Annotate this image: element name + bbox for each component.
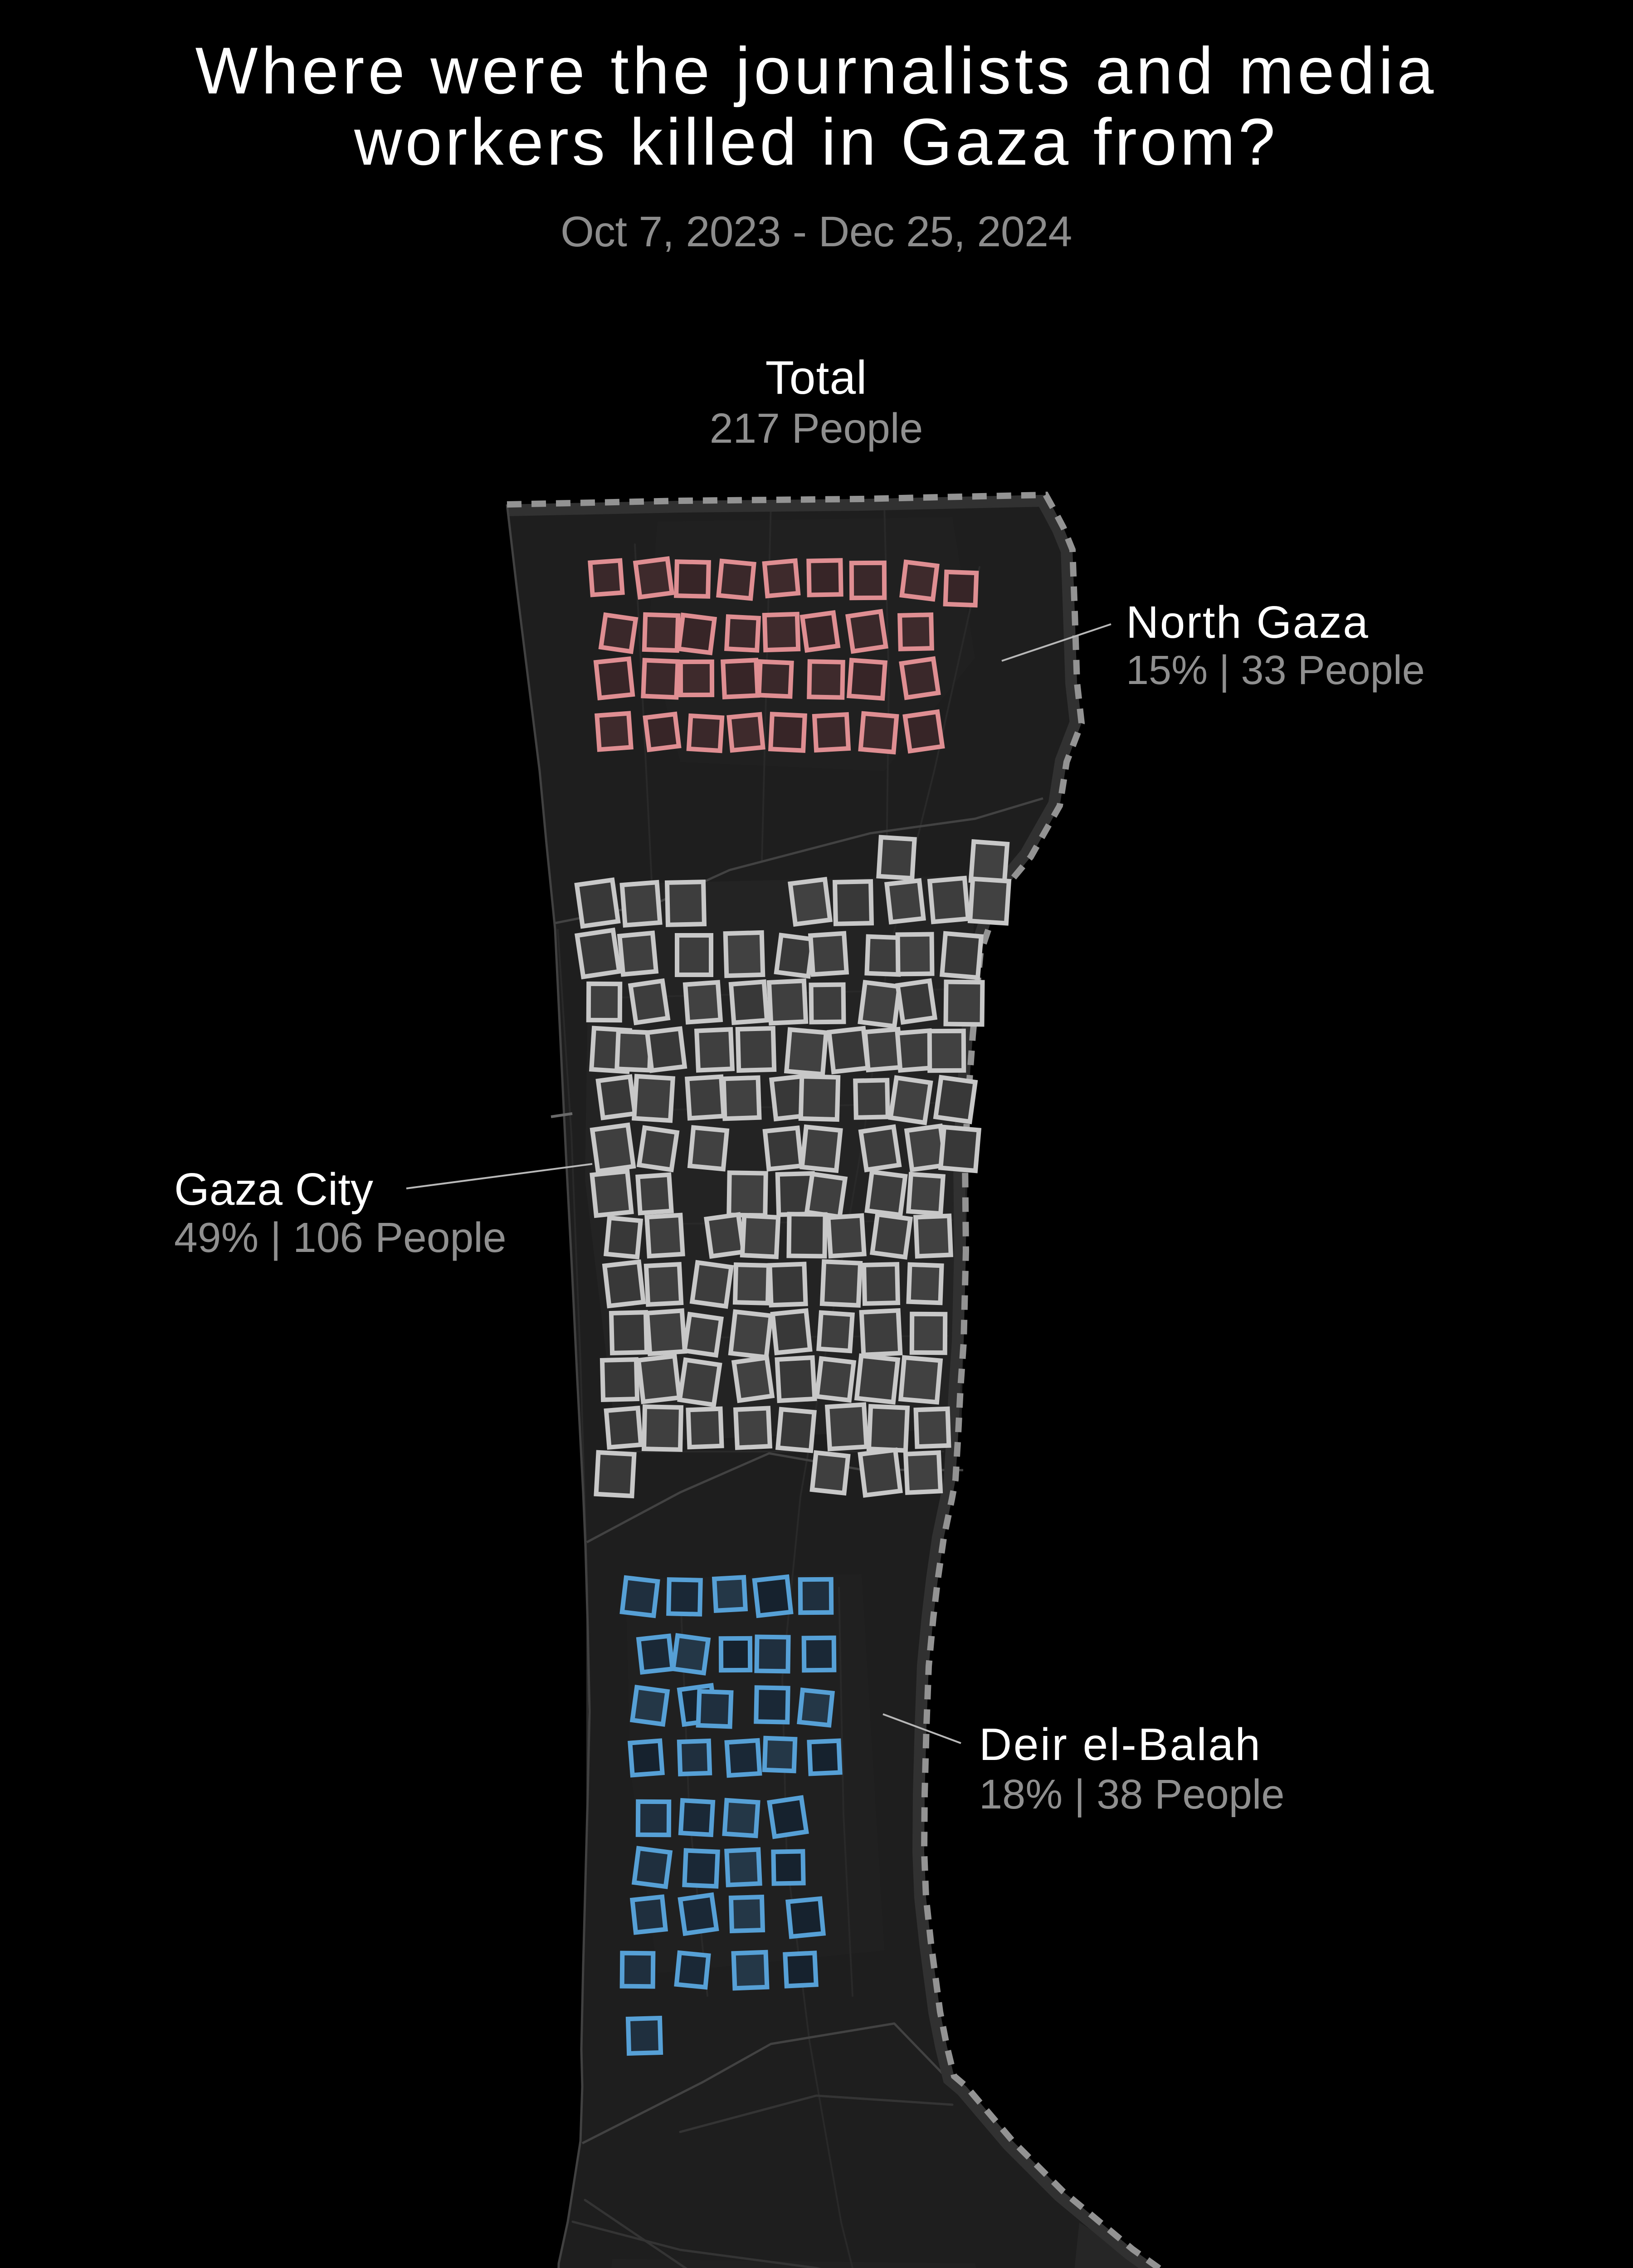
svg-text:workers killed in Gaza from?: workers killed in Gaza from? [354,105,1278,179]
svg-text:North Gaza: North Gaza [1126,597,1369,648]
svg-text:Gaza City: Gaza City [174,1164,373,1215]
svg-text:18% | 38 People: 18% | 38 People [979,1771,1285,1818]
svg-text:49% | 106 People: 49% | 106 People [174,1214,507,1261]
svg-text:15% | 33 People: 15% | 33 People [1126,648,1425,693]
svg-text:Total: Total [765,352,868,404]
svg-text:Deir el-Balah: Deir el-Balah [979,1719,1262,1770]
svg-text:Where were the journalists and: Where were the journalists and media [195,34,1438,108]
svg-text:Oct 7, 2023 - Dec 25, 2024: Oct 7, 2023 - Dec 25, 2024 [561,208,1072,256]
svg-text:217 People: 217 People [710,405,923,452]
